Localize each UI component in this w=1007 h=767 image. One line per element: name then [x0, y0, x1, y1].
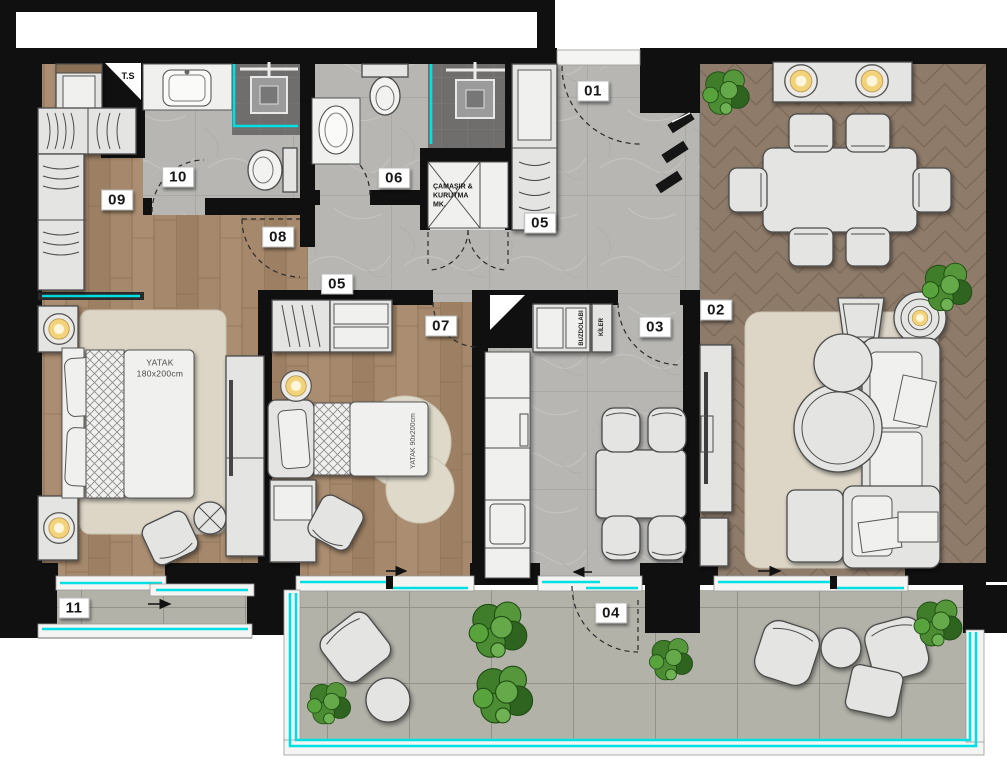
table-lamp: [856, 65, 888, 97]
floor-lamp: [281, 371, 312, 402]
room-label-corridor: 08: [262, 227, 294, 248]
pantry-label: KİLER: [598, 318, 606, 336]
room-label-dressing: 09: [101, 190, 133, 211]
floor-plan: 01 02 03 04 05 05 06 07 08 09 10 11 T.S …: [0, 0, 1007, 767]
plant: [473, 666, 532, 723]
chaise: [787, 490, 843, 562]
plant: [649, 639, 692, 680]
plant: [703, 70, 749, 114]
plant: [922, 263, 972, 311]
railing-balcony-small: [38, 624, 252, 638]
laundry-label: ÇAMAŞIR & KURUTMA MK.: [433, 183, 487, 210]
table-lamp: [785, 65, 817, 97]
tv: [229, 380, 233, 476]
blanket: [314, 403, 350, 475]
railing-balcony-bottom: [284, 740, 984, 755]
wardrobe: [272, 300, 330, 352]
toilet: [248, 148, 297, 192]
table-lamp: [908, 306, 931, 329]
round-table: [821, 628, 861, 668]
single-bed-label: YATAK 90x200cm: [410, 413, 418, 469]
room-label-kitchen: 03: [639, 317, 671, 338]
fridge-label: BUZDOLABI: [578, 310, 586, 345]
side-cabinet: [700, 518, 728, 566]
coffee-table-small: [814, 334, 872, 392]
coffee-table-large: [794, 384, 882, 472]
kitchen-table: [596, 450, 686, 518]
room-label-balcony-small: 11: [59, 598, 90, 619]
ottoman: [844, 663, 904, 719]
room-label-hall2: 05: [321, 274, 353, 295]
wardrobe-side: [38, 154, 84, 290]
tv: [704, 372, 708, 484]
room-label-living: 02: [700, 300, 732, 321]
plant: [307, 683, 350, 724]
plant: [914, 600, 962, 646]
dining-table: [763, 148, 917, 232]
room-label-bath-ensuite: 06: [378, 168, 410, 189]
pillow: [278, 409, 311, 469]
room-label-hall: 05: [524, 213, 556, 234]
entry-closet: [512, 64, 557, 230]
bedside-lamp: [44, 513, 75, 544]
railing-balcony-left: [284, 590, 300, 742]
round-table: [366, 678, 410, 722]
room-label-bath-main: 10: [162, 167, 194, 188]
blanket: [86, 350, 124, 498]
single-bed: [268, 400, 428, 478]
floor-plan-drawing: [0, 0, 1007, 767]
room-label-balcony-main: 04: [595, 603, 627, 624]
entry-threshold: [557, 50, 640, 65]
room-label-entry: 01: [577, 81, 609, 102]
bedside-lamp: [44, 314, 75, 345]
double-bed-label: YATAK 180x200cm: [137, 358, 184, 379]
plant: [469, 602, 527, 657]
wardrobe-top: [38, 108, 136, 154]
room-label-child-bedroom: 07: [425, 316, 457, 337]
shaft-label: T.S: [121, 71, 134, 81]
